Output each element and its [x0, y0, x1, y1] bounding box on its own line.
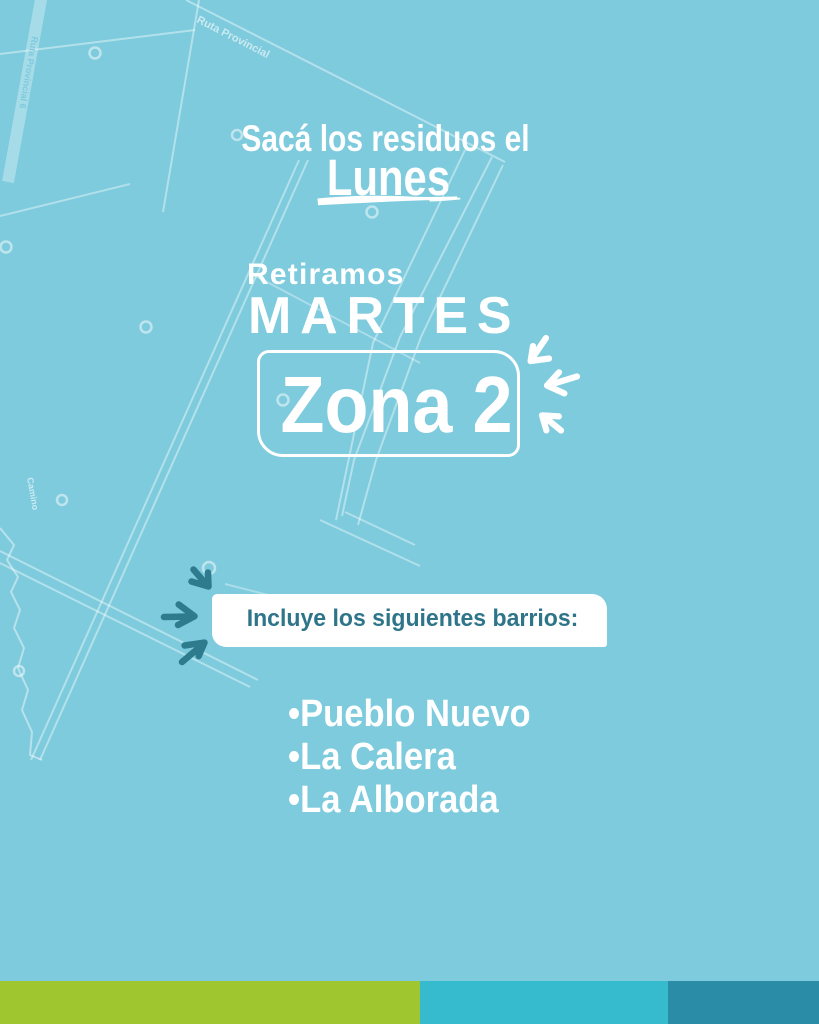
svg-text:Ruta Provincial 6: Ruta Provincial 6 — [17, 36, 40, 110]
svg-text:Camino: Camino — [25, 477, 41, 512]
